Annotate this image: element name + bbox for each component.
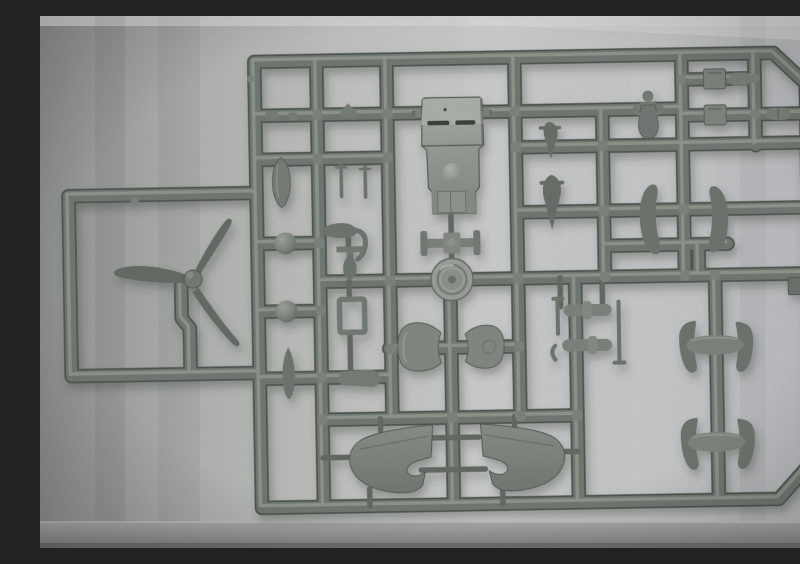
sprue-photo-figure: Sprue runner frame xyxy=(40,16,800,548)
photo-effects xyxy=(40,16,800,548)
sprue-photo: Sprue runner frame xyxy=(40,16,800,548)
